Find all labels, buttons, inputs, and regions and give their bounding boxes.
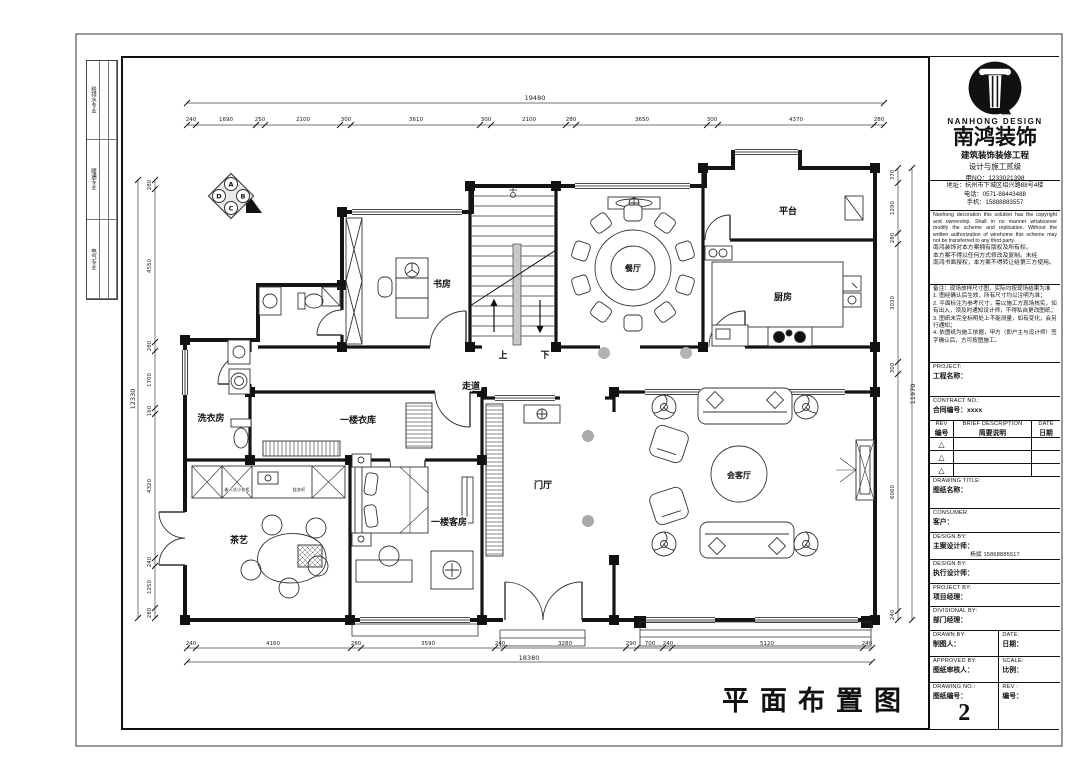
revision-desc-cell: [954, 464, 1032, 477]
rev-no-cell: REV : 编号：: [998, 683, 1060, 729]
room-label-corridor: 走道: [461, 380, 480, 392]
stair-down-label: 下: [540, 350, 549, 361]
consumer-label-cn: 客户：: [933, 516, 1057, 526]
company-line1: 建筑装饰装修工程: [933, 149, 1057, 161]
notes-section: 备注：现场放样尺寸图，实际均按现场结果为准 1. 图经确认后生效，所有尺寸均以注…: [930, 285, 1060, 363]
revision-triangle-icon: △: [930, 438, 954, 451]
dim-label: 3030: [890, 296, 896, 310]
design-by2-label-cn: 执行设计师：: [933, 567, 1057, 577]
revision-date-cell: [1032, 464, 1060, 477]
company-line2: 设计与施工贰级: [933, 161, 1057, 172]
room-label-study: 书房: [433, 278, 451, 290]
contract-section: CONTRACT NO.: 合同编号：xxxx: [930, 397, 1060, 421]
cloakroom-racks: [263, 403, 432, 456]
drawing-no-section: DRAWING NO.: 图纸编号： 2 REV : 编号：: [930, 683, 1060, 729]
project-section: PROJECT: 工程名称：: [930, 363, 1060, 397]
dim-label: 290: [626, 641, 637, 647]
side-table: [652, 532, 676, 556]
revision-table: REV编号 BRIEF DESCRIPTION简要说明 DATE日期 △ △ △: [930, 421, 1060, 477]
note-item: 4. 依图纸为施工依据，甲方（即户主与设计师）签字确认后，方可按图施工。: [933, 330, 1057, 345]
date-cell: DATE: 日期：: [998, 631, 1060, 656]
room-label-guest: 一楼客房: [431, 516, 467, 528]
drawn-by-cell: DRAWN BY: 制图人：: [930, 631, 998, 656]
revision-desc-cell: [954, 438, 1032, 451]
direction-letter: A: [228, 181, 233, 189]
dim-label: 1690: [219, 117, 233, 123]
living-room-furniture: [648, 388, 874, 558]
dim-label: 11970: [909, 384, 917, 405]
dim-label: 300: [481, 117, 492, 123]
dim-label: 280: [566, 117, 577, 123]
direction-letter: B: [241, 193, 246, 201]
closet-small-label: 嵌入式小衣柜: [224, 486, 249, 493]
design-by-value: 杨斌 15868885517: [933, 550, 1057, 558]
platform-closet: [845, 196, 863, 220]
dim-label: 280: [351, 641, 362, 647]
dim-label: 300: [890, 362, 896, 373]
company-address: 地址：杭州市下城区绍兴路88号4楼: [933, 182, 1057, 191]
dim-label: 3650: [635, 117, 649, 123]
rev-col-header: REV编号: [930, 421, 954, 438]
note-item: 3. 图纸未完全标明处上不能测量，如有变化，会另行通知；: [933, 316, 1057, 331]
logo-section: NANHONG DESIGN 南鸿装饰 建筑装饰装修工程 设计与施工贰级 甲NO…: [930, 57, 1060, 181]
address-section: 地址：杭州市下城区绍兴路88号4楼 电话：0571-88443488 手机：15…: [930, 181, 1060, 211]
dim-label: 4370: [789, 117, 803, 123]
drawing-no-cell: DRAWING NO.: 图纸编号： 2: [930, 683, 998, 729]
sheet-title: 平面布置图: [712, 679, 922, 718]
room-label-dining: 餐厅: [624, 263, 641, 273]
drawing-sheet: 19480 240 1690 250 2100 300 3610 300 210…: [0, 0, 1080, 764]
dim-label: 240: [186, 117, 197, 123]
dim-label: 3590: [421, 641, 435, 647]
dim-label: 240: [147, 556, 153, 567]
date-col-header: DATE日期: [1032, 421, 1060, 438]
copyright-section: Nanhong decoration this solution has the…: [930, 211, 1060, 285]
signature-cell-label: 暖通专业: [87, 140, 100, 219]
room-label-foyer: 门厅: [534, 479, 552, 491]
dim-label: 280: [147, 340, 153, 351]
approved-by-cell: APPROVED BY: 图纸审核人：: [930, 657, 998, 682]
dim-label: 280: [874, 117, 885, 123]
dim-label: 370: [890, 169, 896, 180]
signature-cell-label: 给排水专业: [87, 61, 100, 140]
dim-label: 2100: [296, 117, 310, 123]
study-furniture: [346, 218, 428, 344]
drawing-number: 2: [933, 700, 995, 726]
revision-triangle-icon: △: [930, 464, 954, 477]
drawing-title-section: DRAWING TITLE: 图纸名称：: [930, 477, 1060, 509]
design-by2-section: DESIGN BY: 执行设计师：: [930, 560, 1060, 584]
side-table: [794, 532, 818, 556]
dim-label: 12330: [129, 389, 137, 410]
dim-label: 280: [890, 232, 896, 243]
side-table: [794, 395, 818, 419]
rod-label: 挂衣杆: [293, 486, 306, 493]
company-license-no: 甲NO：1233021398: [933, 172, 1057, 181]
corridor-symbols: [598, 347, 692, 359]
dim-label: 18380: [519, 654, 540, 662]
revision-desc-cell: [954, 451, 1032, 464]
room-label-tea: 茶艺: [229, 534, 248, 546]
copyright-en: Nanhong decoration this solution has the…: [933, 212, 1057, 245]
room-label-laundry: 洗衣房: [197, 412, 224, 424]
approved-scale-section: APPROVED BY: 图纸审核人： SCALE: 比例：: [930, 657, 1060, 683]
divisional-by-label-cn: 部门经理：: [933, 614, 1057, 624]
design-by-section: DESIGN BY: 主案设计师： 杨斌 15868885517: [930, 533, 1060, 560]
dim-label: 1290: [890, 201, 896, 215]
dim-label: 3610: [409, 117, 423, 123]
signature-strip: 给排水专业 暖通专业 电气专业: [86, 60, 118, 300]
divisional-by-section: DIVISIONAL BY: 部门经理：: [930, 607, 1060, 631]
dim-label: 240: [186, 641, 197, 647]
drawing-title-label-cn: 图纸名称：: [933, 484, 1057, 494]
dim-label: 6060: [890, 485, 896, 499]
note-item: 2. 平面标注为参考尺寸，需以施工方现场核实，如有出入，须及时通知设计师，不得私…: [933, 301, 1057, 316]
bathroom-fixtures: [259, 287, 340, 315]
foyer-furniture: [486, 404, 594, 556]
floor-plan-canvas: 19480 240 1690 250 2100 300 3610 300 210…: [0, 0, 1080, 764]
consumer-section: CONSUMER 客户：: [930, 509, 1060, 533]
note-item: 1. 图经确认后生效，所有尺寸均以注明为准；: [933, 293, 1057, 300]
dim-label: 250: [255, 117, 266, 123]
dim-label: 4320: [147, 479, 153, 493]
copyright-cn: 南鸿装饰对本方案拥有版权及所有权。 本方案不得以任何方式修改及复制。未经 南鸿书…: [933, 245, 1057, 268]
room-label-living: 会客厅: [727, 470, 751, 480]
direction-letter: D: [216, 193, 222, 201]
room-label-cloakroom: 一楼衣库: [340, 414, 376, 426]
company-tel: 电话：0571-88443488: [933, 191, 1057, 200]
dim-label: 300: [707, 117, 718, 123]
room-label-platform: 平台: [779, 205, 797, 217]
elevation-index-symbol: A B C D: [208, 173, 262, 218]
project-label-cn: 工程名称：: [933, 370, 1057, 380]
stair-up-label: 上: [498, 349, 507, 361]
stairs: [470, 187, 556, 345]
column-logo-icon: [967, 60, 1023, 116]
dim-label: 240: [890, 609, 896, 620]
dim-label: 280: [147, 607, 153, 618]
scale-cell: SCALE: 比例：: [998, 657, 1060, 682]
contract-label-cn: 合同编号：xxxx: [933, 404, 1057, 414]
company-mobile: 手机：15888883557: [933, 199, 1057, 208]
project-by-label-cn: 项目经理：: [933, 591, 1057, 601]
desc-col-header: BRIEF DESCRIPTION简要说明: [954, 421, 1032, 438]
side-table: [652, 395, 676, 419]
revision-triangle-icon: △: [930, 451, 954, 464]
design-by-label-cn: 主案设计师：: [933, 540, 1057, 550]
drawn-date-section: DRAWN BY: 制图人： DATE: 日期：: [930, 631, 1060, 657]
signature-cell-label: 电气专业: [87, 220, 100, 299]
dim-label: 1250: [147, 580, 153, 594]
dim-label: 300: [341, 117, 352, 123]
project-by-section: PROJECT BY: 项目经理：: [930, 584, 1060, 607]
revision-date-cell: [1032, 438, 1060, 451]
tea-room-furniture: [192, 466, 345, 598]
room-label-kitchen: 厨房: [774, 291, 792, 303]
dim-label: 4160: [266, 641, 280, 647]
dim-label: 280: [147, 179, 153, 190]
company-name: 南鸿装饰: [933, 126, 1057, 149]
direction-letter: C: [229, 205, 234, 213]
laundry-fixtures: [228, 340, 251, 448]
company-logo: [933, 60, 1057, 116]
revision-date-cell: [1032, 451, 1060, 464]
title-block: NANHONG DESIGN 南鸿装饰 建筑装饰装修工程 设计与施工贰级 甲NO…: [928, 57, 1060, 729]
dim-label: 1700: [147, 373, 153, 387]
dim-label: 2100: [522, 117, 536, 123]
dim-label: 160: [147, 405, 153, 416]
dim-label: 4550: [147, 259, 153, 273]
dim-label: 19480: [525, 94, 546, 102]
